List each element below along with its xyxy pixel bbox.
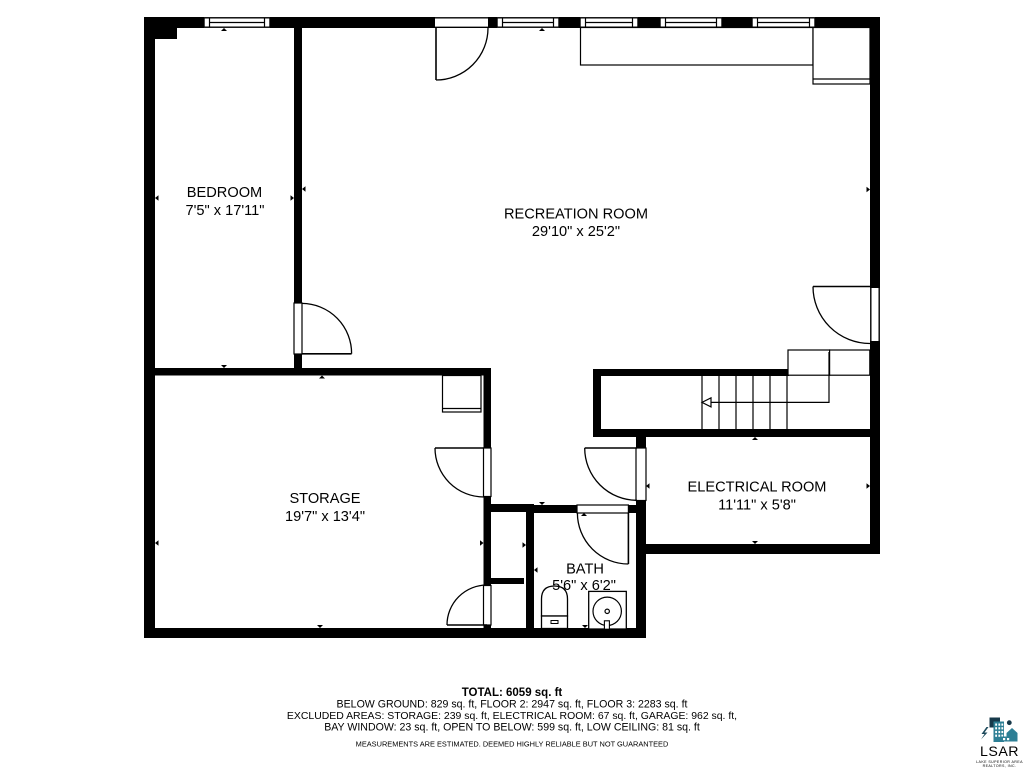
- svg-text:BELOW GROUND: 829 sq. ft, FLOO: BELOW GROUND: 829 sq. ft, FLOOR 2: 2947 …: [337, 699, 688, 711]
- svg-text:BAY WINDOW: 23 sq. ft, OPEN TO: BAY WINDOW: 23 sq. ft, OPEN TO BELOW: 59…: [324, 722, 700, 734]
- svg-text:MEASUREMENTS ARE ESTIMATED. DE: MEASUREMENTS ARE ESTIMATED. DEEMED HIGHL…: [356, 740, 669, 749]
- svg-text:11'11" x 5'8": 11'11" x 5'8": [718, 497, 796, 513]
- svg-text:29'10" x 25'2": 29'10" x 25'2": [532, 224, 620, 240]
- svg-text:EXCLUDED AREAS: STORAGE: 239 s: EXCLUDED AREAS: STORAGE: 239 sq. ft, ELE…: [287, 711, 737, 722]
- svg-text:ELECTRICAL ROOM: ELECTRICAL ROOM: [688, 480, 827, 496]
- svg-text:5'6" x 6'2": 5'6" x 6'2": [552, 578, 616, 594]
- svg-text:STORAGE: STORAGE: [289, 491, 360, 507]
- svg-text:TOTAL: 6059 sq. ft: TOTAL: 6059 sq. ft: [462, 687, 563, 699]
- svg-text:RECREATION ROOM: RECREATION ROOM: [504, 206, 648, 222]
- svg-text:19'7" x 13'4": 19'7" x 13'4": [285, 509, 365, 525]
- svg-text:REALTORS, INC.: REALTORS, INC.: [983, 764, 1017, 768]
- svg-text:LSAR: LSAR: [980, 744, 1019, 760]
- svg-text:BATH: BATH: [566, 562, 604, 578]
- svg-text:BEDROOM: BEDROOM: [187, 185, 262, 201]
- svg-text:7'5" x 17'11": 7'5" x 17'11": [186, 203, 265, 219]
